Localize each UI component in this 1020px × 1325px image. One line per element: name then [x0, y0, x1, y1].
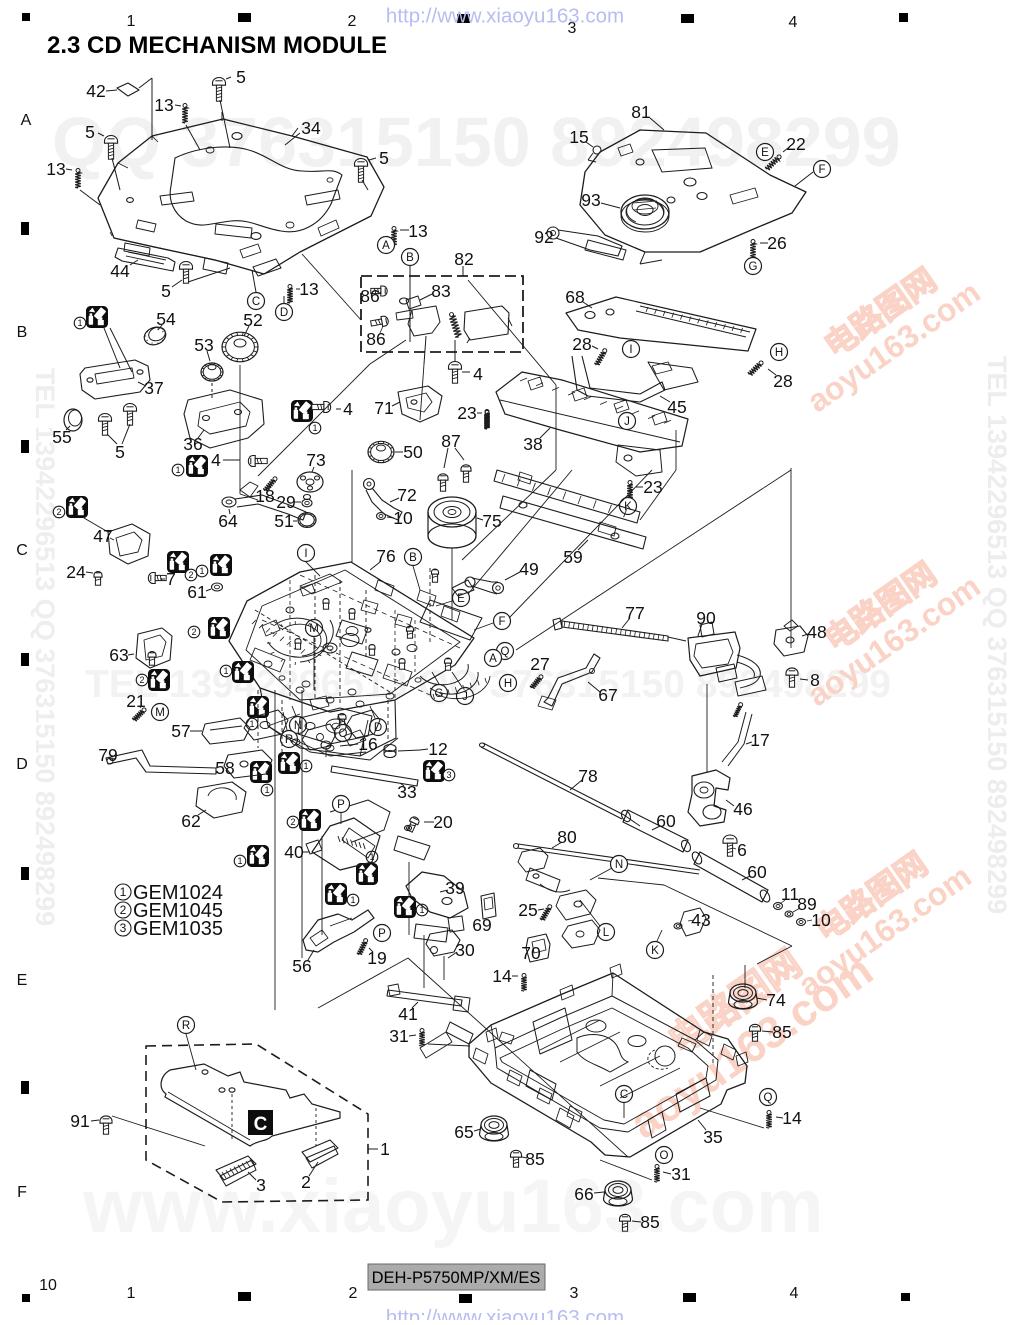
svg-text:1: 1	[127, 1285, 136, 1302]
svg-text:D: D	[280, 307, 288, 319]
svg-text:58: 58	[215, 758, 234, 778]
svg-text:2: 2	[188, 570, 193, 580]
svg-text:41: 41	[398, 1004, 417, 1024]
svg-text:O: O	[660, 1150, 669, 1162]
svg-text:4: 4	[343, 399, 353, 419]
svg-text:6: 6	[737, 840, 747, 860]
svg-text:E: E	[761, 147, 769, 159]
svg-text:27: 27	[530, 654, 549, 674]
svg-text:5: 5	[236, 67, 246, 87]
svg-text:92: 92	[534, 227, 553, 247]
svg-text:29: 29	[276, 492, 295, 512]
svg-text:2: 2	[348, 13, 357, 30]
svg-text:K: K	[624, 501, 632, 513]
svg-text:J: J	[624, 416, 630, 428]
svg-text:57: 57	[171, 721, 190, 741]
svg-text:51: 51	[274, 511, 293, 531]
svg-text:1: 1	[175, 465, 180, 475]
svg-text:2: 2	[56, 507, 61, 517]
svg-text:25: 25	[518, 900, 537, 920]
svg-text:91: 91	[70, 1111, 89, 1131]
svg-text:39: 39	[445, 878, 464, 898]
svg-text:5: 5	[115, 442, 125, 462]
svg-text:DEH-P5750MP/XM/ES: DEH-P5750MP/XM/ES	[372, 1269, 541, 1287]
svg-text:TEL 13942296513 QQ 376315150 8: TEL 13942296513 QQ 376315150 892498299	[982, 356, 1012, 914]
svg-text:24: 24	[66, 562, 86, 582]
svg-text:22: 22	[786, 134, 805, 154]
svg-text:64: 64	[218, 511, 238, 531]
svg-text:TEL 13942296513 QQ 376315150 8: TEL 13942296513 QQ 376315150 892498299	[30, 368, 60, 926]
svg-text:28: 28	[773, 371, 792, 391]
svg-text:1: 1	[380, 1139, 390, 1159]
svg-text:26: 26	[767, 233, 786, 253]
svg-text:30: 30	[455, 940, 475, 960]
svg-text:47: 47	[93, 526, 112, 546]
svg-text:2: 2	[349, 1285, 358, 1302]
svg-text:23: 23	[457, 403, 476, 423]
svg-text:38: 38	[523, 434, 542, 454]
svg-text:13: 13	[154, 95, 173, 115]
svg-text:80: 80	[557, 827, 577, 847]
svg-text:2.3 CD MECHANISM MODULE: 2.3 CD MECHANISM MODULE	[47, 32, 387, 59]
svg-text:43: 43	[691, 910, 710, 930]
svg-text:10: 10	[811, 910, 831, 930]
svg-text:B: B	[406, 252, 414, 264]
svg-text:46: 46	[733, 799, 752, 819]
svg-text:75: 75	[482, 511, 501, 531]
svg-text:1: 1	[237, 856, 242, 866]
svg-text:GEM1035: GEM1035	[133, 918, 223, 940]
svg-text:H: H	[504, 678, 512, 690]
svg-text:31: 31	[389, 1026, 408, 1046]
svg-text:8: 8	[810, 670, 820, 690]
svg-text:14: 14	[492, 966, 512, 986]
svg-text:1: 1	[77, 318, 82, 328]
svg-text:P: P	[378, 928, 386, 940]
svg-text:F: F	[17, 1184, 27, 1201]
svg-text:http://www.xiaoyu163.com: http://www.xiaoyu163.com	[386, 5, 624, 28]
svg-text:10: 10	[39, 1277, 57, 1294]
svg-text:2: 2	[139, 675, 144, 685]
svg-text:P: P	[337, 799, 345, 811]
svg-text:A: A	[21, 112, 32, 129]
svg-text:33: 33	[397, 782, 416, 802]
svg-text:90: 90	[696, 608, 716, 628]
svg-text:4: 4	[473, 364, 483, 384]
svg-text:67: 67	[598, 685, 617, 705]
svg-text:C: C	[254, 1114, 268, 1135]
svg-text:G: G	[749, 261, 758, 273]
svg-text:TEL 13942296513 QQ 376315150 8: TEL 13942296513 QQ 376315150 892498299	[85, 663, 891, 706]
svg-text:B: B	[17, 324, 28, 341]
svg-text:73: 73	[306, 450, 325, 470]
svg-text:L: L	[603, 927, 610, 939]
svg-text:37: 37	[144, 378, 163, 398]
svg-text:1: 1	[223, 666, 228, 676]
svg-text:85: 85	[525, 1149, 544, 1169]
svg-text:3: 3	[570, 1285, 579, 1302]
svg-text:21: 21	[126, 691, 145, 711]
svg-text:13: 13	[299, 279, 318, 299]
svg-text:1: 1	[199, 566, 204, 576]
svg-text:I: I	[629, 344, 632, 356]
svg-text:54: 54	[156, 309, 176, 329]
svg-text:13: 13	[408, 221, 427, 241]
svg-text:53: 53	[194, 335, 213, 355]
svg-text:69: 69	[472, 915, 491, 935]
svg-text:81: 81	[631, 102, 650, 122]
svg-text:N: N	[615, 859, 623, 871]
svg-text:35: 35	[703, 1127, 722, 1147]
svg-text:A: A	[489, 653, 497, 665]
svg-text:2: 2	[290, 817, 295, 827]
svg-text:3: 3	[120, 921, 127, 935]
svg-text:72: 72	[397, 485, 416, 505]
svg-text:63: 63	[109, 645, 128, 665]
svg-text:68: 68	[565, 287, 584, 307]
svg-text:66: 66	[574, 1184, 593, 1204]
svg-text:31: 31	[671, 1164, 690, 1184]
svg-text:3: 3	[446, 770, 451, 780]
svg-text:28: 28	[572, 334, 591, 354]
svg-text:Q: Q	[764, 1092, 773, 1104]
svg-text:34: 34	[301, 118, 321, 138]
svg-text:82: 82	[454, 249, 473, 269]
svg-text:10: 10	[393, 508, 413, 528]
svg-text:1: 1	[264, 785, 269, 795]
svg-text:5: 5	[379, 148, 389, 168]
svg-text:5: 5	[161, 281, 171, 301]
svg-text:61: 61	[187, 582, 206, 602]
svg-text:42: 42	[86, 81, 105, 101]
svg-text:13: 13	[46, 159, 65, 179]
svg-text:93: 93	[581, 190, 600, 210]
svg-text:20: 20	[433, 812, 453, 832]
svg-text:I: I	[304, 548, 307, 560]
svg-text:2: 2	[120, 903, 127, 917]
svg-text:14: 14	[782, 1108, 802, 1128]
svg-text:60: 60	[747, 862, 767, 882]
svg-text:85: 85	[640, 1212, 659, 1232]
svg-text:1: 1	[312, 423, 317, 433]
svg-text:74: 74	[766, 990, 786, 1010]
svg-text:1: 1	[127, 13, 136, 30]
svg-text:5: 5	[85, 122, 95, 142]
svg-text:www.xiaoyu163.com: www.xiaoyu163.com	[82, 1164, 824, 1249]
svg-text:52: 52	[243, 310, 262, 330]
svg-text:O: O	[339, 728, 348, 740]
svg-text:B: B	[409, 552, 417, 564]
svg-text:1: 1	[120, 885, 127, 899]
svg-text:50: 50	[403, 442, 423, 462]
svg-text:A: A	[382, 240, 390, 252]
svg-text:44: 44	[110, 261, 130, 281]
svg-text:78: 78	[578, 766, 597, 786]
svg-text:55: 55	[52, 427, 71, 447]
svg-text:40: 40	[284, 842, 304, 862]
svg-text:1: 1	[350, 895, 355, 905]
svg-text:49: 49	[519, 559, 538, 579]
svg-text:M: M	[309, 623, 319, 635]
svg-text:87: 87	[441, 431, 460, 451]
svg-text:12: 12	[428, 739, 447, 759]
svg-text:K: K	[651, 945, 659, 957]
svg-text:17: 17	[750, 730, 769, 750]
svg-text:4: 4	[789, 14, 798, 31]
svg-text:59: 59	[563, 547, 582, 567]
svg-text:1: 1	[303, 761, 308, 771]
svg-text:65: 65	[454, 1122, 473, 1142]
svg-text:36: 36	[183, 434, 202, 454]
svg-text:2: 2	[191, 627, 196, 637]
svg-text:M: M	[155, 707, 165, 719]
svg-text:19: 19	[367, 948, 386, 968]
svg-text:70: 70	[521, 943, 541, 963]
svg-text:79: 79	[98, 745, 117, 765]
svg-text:E: E	[17, 972, 28, 989]
svg-text:C: C	[620, 1089, 628, 1101]
svg-text:85: 85	[772, 1022, 791, 1042]
svg-text:48: 48	[807, 622, 826, 642]
svg-text:C: C	[16, 542, 28, 559]
svg-text:R: R	[182, 1020, 190, 1032]
svg-text:http://www.xiaoyu163.com: http://www.xiaoyu163.com	[386, 1306, 624, 1320]
svg-text:86: 86	[366, 329, 385, 349]
svg-text:15: 15	[569, 127, 588, 147]
svg-text:G: G	[435, 688, 444, 700]
svg-text:F: F	[498, 616, 505, 628]
svg-text:23: 23	[643, 477, 662, 497]
svg-text:86: 86	[360, 286, 379, 306]
svg-text:C: C	[252, 296, 260, 308]
svg-text:62: 62	[181, 811, 200, 831]
svg-text:3: 3	[256, 1175, 266, 1195]
svg-text:F: F	[818, 164, 825, 176]
svg-text:D: D	[16, 756, 28, 773]
svg-text:H: H	[775, 347, 783, 359]
svg-text:83: 83	[431, 281, 450, 301]
svg-text:QQ 376315150 892498299: QQ 376315150 892498299	[52, 103, 901, 181]
svg-text:71: 71	[374, 398, 393, 418]
svg-text:4: 4	[211, 450, 221, 470]
svg-text:60: 60	[656, 811, 676, 831]
svg-text:4: 4	[790, 1285, 799, 1302]
